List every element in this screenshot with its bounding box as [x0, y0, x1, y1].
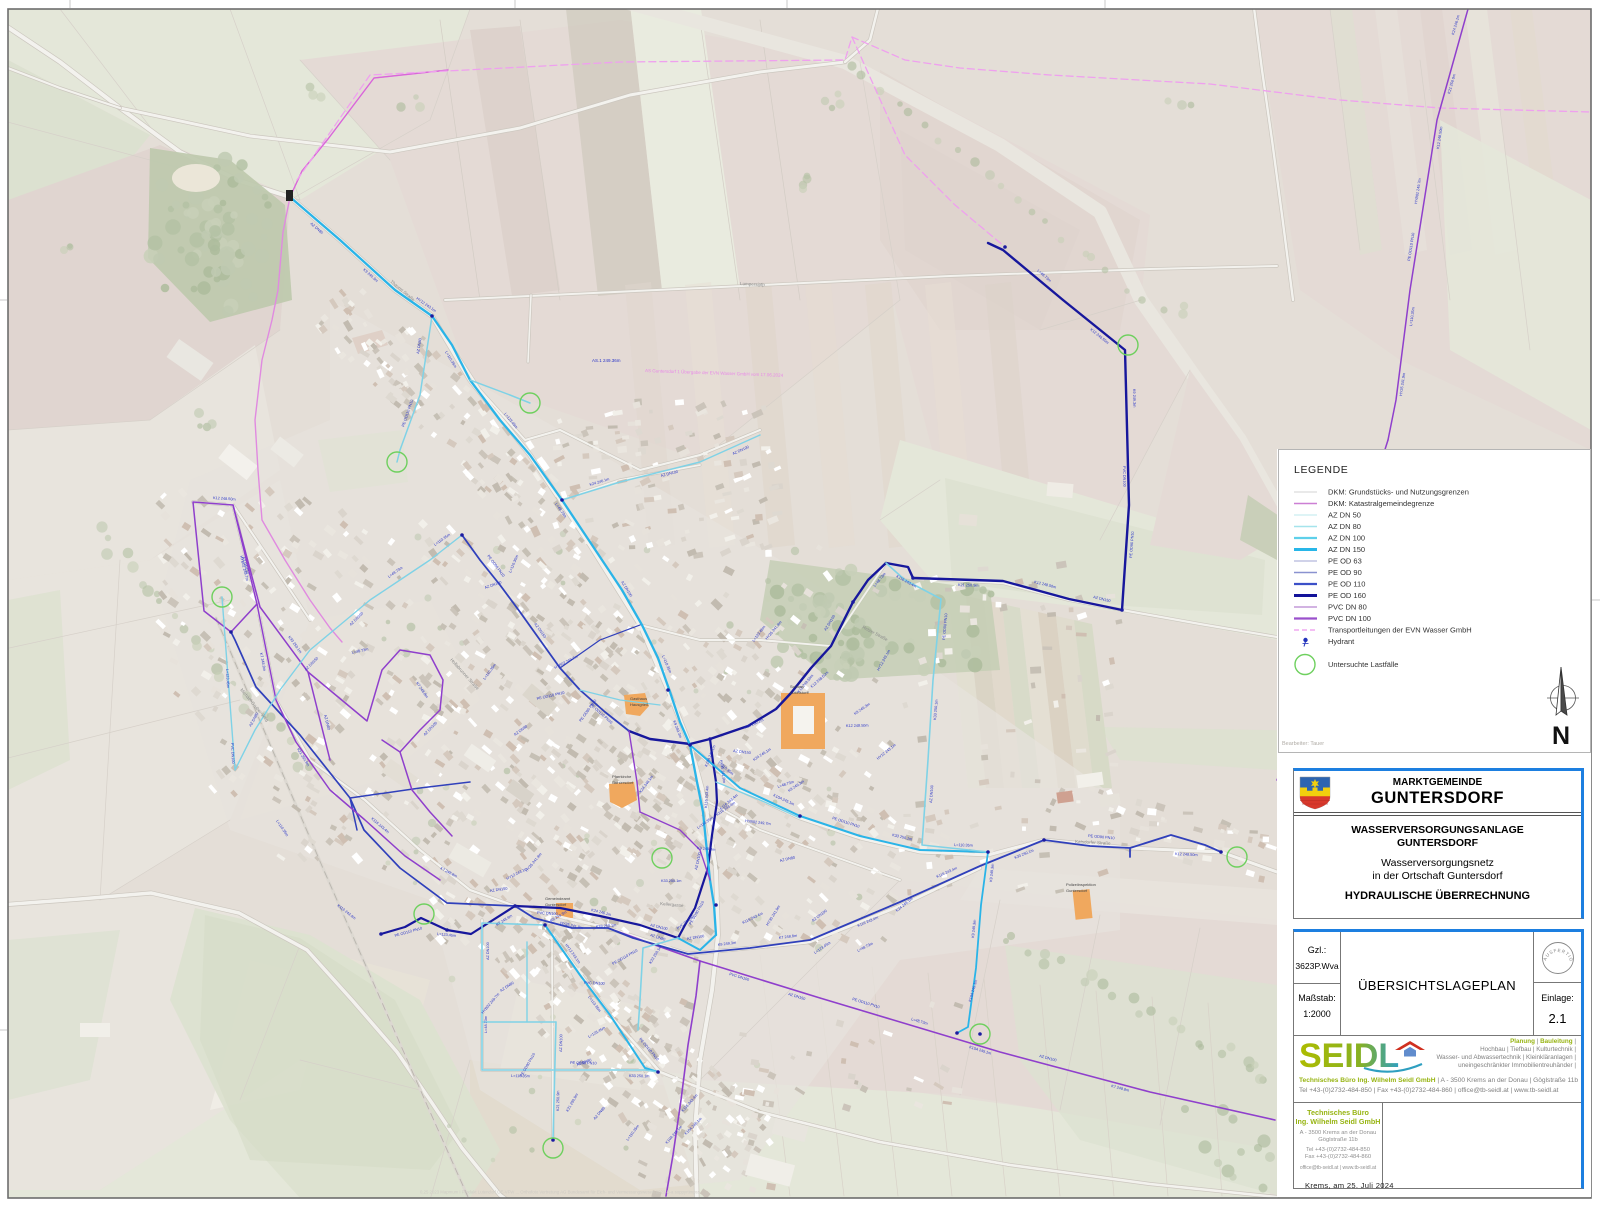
svg-text:Luttelstorff: Luttelstorff — [790, 690, 809, 695]
svg-text:L=110.35m: L=110.35m — [954, 843, 973, 848]
svg-text:PVC DN100: PVC DN100 — [584, 981, 605, 986]
svg-text:PE OD 160: PE OD 160 — [1328, 591, 1366, 600]
svg-text:N: N — [1552, 722, 1570, 750]
svg-text:AZ DN100: AZ DN100 — [486, 942, 490, 960]
svg-text:Pfarrkirche: Pfarrkirche — [612, 774, 632, 779]
svg-text:Schloss: Schloss — [790, 684, 804, 689]
svg-text:K21 250.9m: K21 250.9m — [958, 583, 979, 588]
svg-text:DKM: Katastralgemeindegrenze: DKM: Katastralgemeindegrenze — [1328, 499, 1434, 508]
svg-text:0,25 2023 Mapmum I Prodakt Lut: 0,25 2023 Mapmum I Prodakt Lutendorf OE-… — [420, 1190, 700, 1195]
svg-text:AZ DN 100: AZ DN 100 — [1328, 534, 1365, 543]
svg-text:AZ DN 150: AZ DN 150 — [1328, 545, 1365, 554]
svg-text:Hydrant: Hydrant — [1328, 637, 1355, 646]
svg-text:AS.1 249.36m: AS.1 249.36m — [592, 358, 621, 363]
svg-text:AZ DN 80: AZ DN 80 — [1328, 522, 1361, 531]
svg-text:Guntersdorf: Guntersdorf — [612, 780, 634, 785]
svg-text:K33 250.1m: K33 250.1m — [661, 879, 681, 883]
svg-text:SEIDL: SEIDL — [1299, 1037, 1399, 1075]
svg-text:Untersuchte Lastfälle: Untersuchte Lastfälle — [1328, 660, 1398, 669]
svg-text:Guntersdorf: Guntersdorf — [545, 902, 567, 907]
svg-text:PE OD 110: PE OD 110 — [1328, 580, 1365, 589]
svg-text:Gasthaus: Gasthaus — [630, 696, 647, 701]
svg-text:AZ DN 50: AZ DN 50 — [1328, 511, 1361, 520]
svg-text:K12 248.50m: K12 248.50m — [846, 724, 869, 728]
svg-text:AUSFERTIGUNG: AUSFERTIGUNG — [1540, 940, 1574, 963]
svg-text:PVC DN 100: PVC DN 100 — [1328, 614, 1371, 623]
svg-text:Polizeiinspektion: Polizeiinspektion — [1066, 882, 1096, 887]
svg-text:K33 250.1m: K33 250.1m — [629, 1074, 650, 1078]
svg-text:Hausgrieß: Hausgrieß — [630, 702, 649, 707]
svg-text:Gemeindeamt: Gemeindeamt — [545, 896, 571, 901]
svg-text:PE OD 90: PE OD 90 — [1328, 568, 1362, 577]
svg-text:PVC DN100: PVC DN100 — [1122, 466, 1126, 487]
svg-text:L=48.73m: L=48.73m — [484, 1016, 488, 1033]
svg-text:K9 249.3m: K9 249.3m — [1132, 389, 1136, 407]
svg-text:DKM: Grundstücks- und Nutzungs: DKM: Grundstücks- und Nutzungsgrenzen — [1328, 488, 1469, 497]
svg-text:AZ DN100: AZ DN100 — [559, 1034, 563, 1052]
svg-text:PE OD 63: PE OD 63 — [1328, 557, 1362, 566]
svg-text:Guntersdorf: Guntersdorf — [1066, 888, 1088, 893]
svg-text:Transportleitungen der EVN Was: Transportleitungen der EVN Wasser GmbH — [1328, 626, 1472, 635]
svg-text:PVC DN 80: PVC DN 80 — [1328, 603, 1367, 612]
svg-text:K21 250.9m: K21 250.9m — [556, 1090, 560, 1111]
